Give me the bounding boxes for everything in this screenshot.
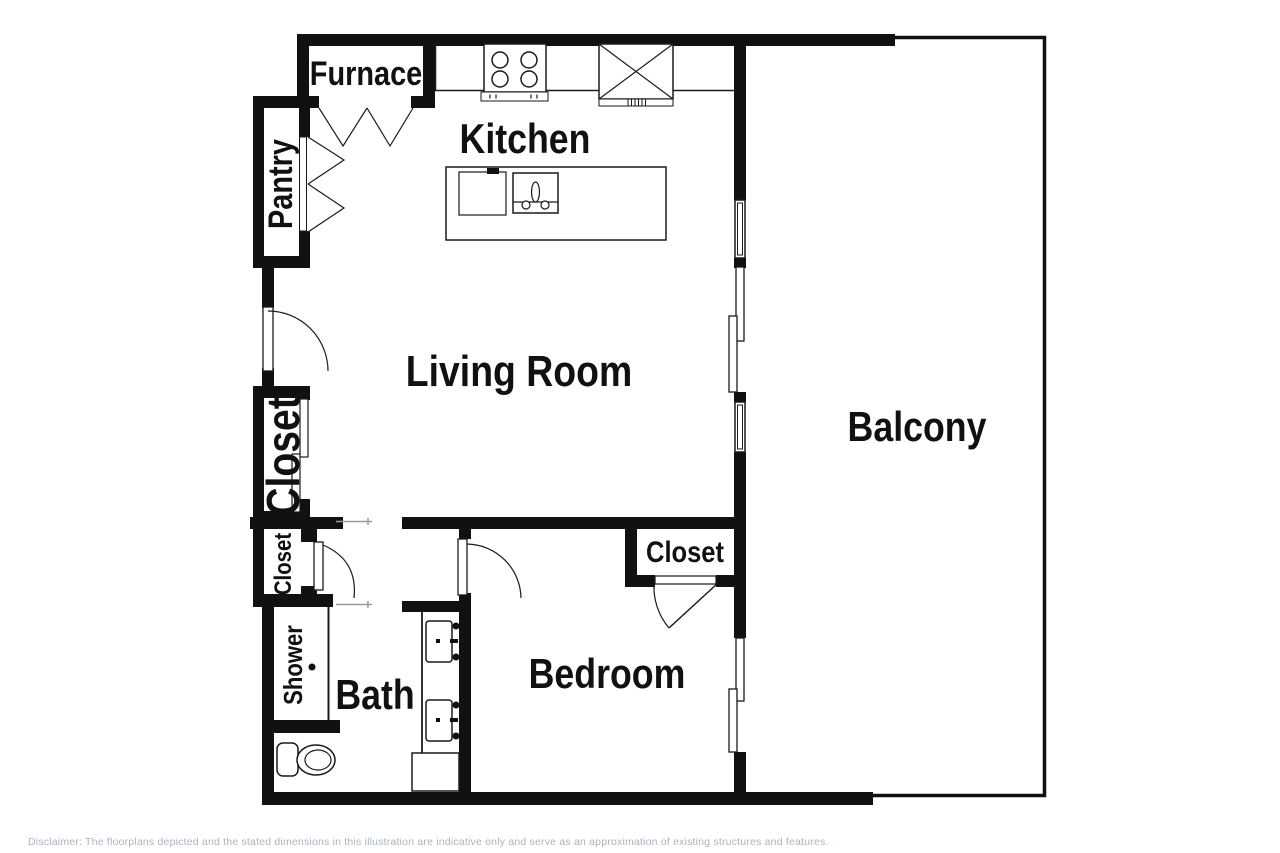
wall-closet-small-right-upper xyxy=(301,529,317,542)
wall-divider-stub-top xyxy=(459,517,471,539)
wall-closet-bedroom-bottom-left xyxy=(625,575,655,587)
wall-right-3 xyxy=(734,392,746,402)
wall-furnace-bottom-right xyxy=(411,96,435,108)
room-label-closet-large: Closet xyxy=(260,396,306,516)
wall-top xyxy=(297,34,895,46)
room-label-closet-small: Closet xyxy=(272,533,296,595)
wall-left-above-entry xyxy=(262,268,274,308)
kitchen-counter xyxy=(435,42,734,91)
wall-shower-bottom xyxy=(262,720,340,733)
wall-divider-lower xyxy=(459,593,471,792)
room-label-closet-bedroom: Closet xyxy=(646,538,724,568)
wall-hall-north-west xyxy=(250,517,343,529)
window-living-2-pane xyxy=(738,405,743,449)
shower-drain xyxy=(309,664,316,671)
wall-furnace-right xyxy=(423,38,435,98)
closet-small-door xyxy=(314,542,354,598)
furnace-bifold-doors xyxy=(319,108,413,146)
bedroom-door xyxy=(458,539,521,598)
wall-bottom xyxy=(262,792,873,805)
wall-right-5 xyxy=(734,752,746,798)
entry-door xyxy=(263,307,328,371)
wall-pantry-right-upper xyxy=(299,96,310,137)
wall-furnace-left xyxy=(297,34,309,104)
room-label-shower: Shower xyxy=(280,625,306,705)
room-label-bath: Bath xyxy=(335,674,414,716)
kitchen-island-fixture xyxy=(446,167,666,240)
window-living-1-pane xyxy=(738,203,743,255)
wall-hall-north-east xyxy=(402,517,746,529)
slider-bedroom-pane-inner xyxy=(729,689,737,752)
wall-right-1 xyxy=(734,34,746,200)
slider-living-pane-inner xyxy=(729,316,737,392)
stove-fixture xyxy=(481,44,548,101)
floorplan-drawing xyxy=(0,0,1280,853)
wall-pantry-right-lower xyxy=(299,231,310,268)
room-label-bedroom: Bedroom xyxy=(529,653,686,695)
disclaimer-text: Disclaimer: The floorplans depicted and … xyxy=(28,836,829,848)
wall-right-4 xyxy=(734,452,746,638)
room-label-living-room: Living Room xyxy=(406,350,632,394)
pantry-bifold-doors xyxy=(300,137,345,232)
range-hood-fan-fixture xyxy=(599,44,673,106)
vanity-fixture xyxy=(412,612,460,791)
floorplan-canvas: Furnace Kitchen Pantry Living Room Close… xyxy=(0,0,1280,853)
room-label-pantry: Pantry xyxy=(264,139,298,229)
room-label-kitchen: Kitchen xyxy=(460,118,591,160)
room-label-balcony: Balcony xyxy=(848,406,987,448)
room-label-furnace: Furnace xyxy=(310,57,422,91)
bedroom-closet-door xyxy=(654,576,718,628)
wall-closet-small-bottom xyxy=(253,594,333,607)
wall-left-bath xyxy=(262,607,274,792)
shower-stall-fixture xyxy=(309,607,329,721)
toilet-fixture xyxy=(277,743,335,776)
